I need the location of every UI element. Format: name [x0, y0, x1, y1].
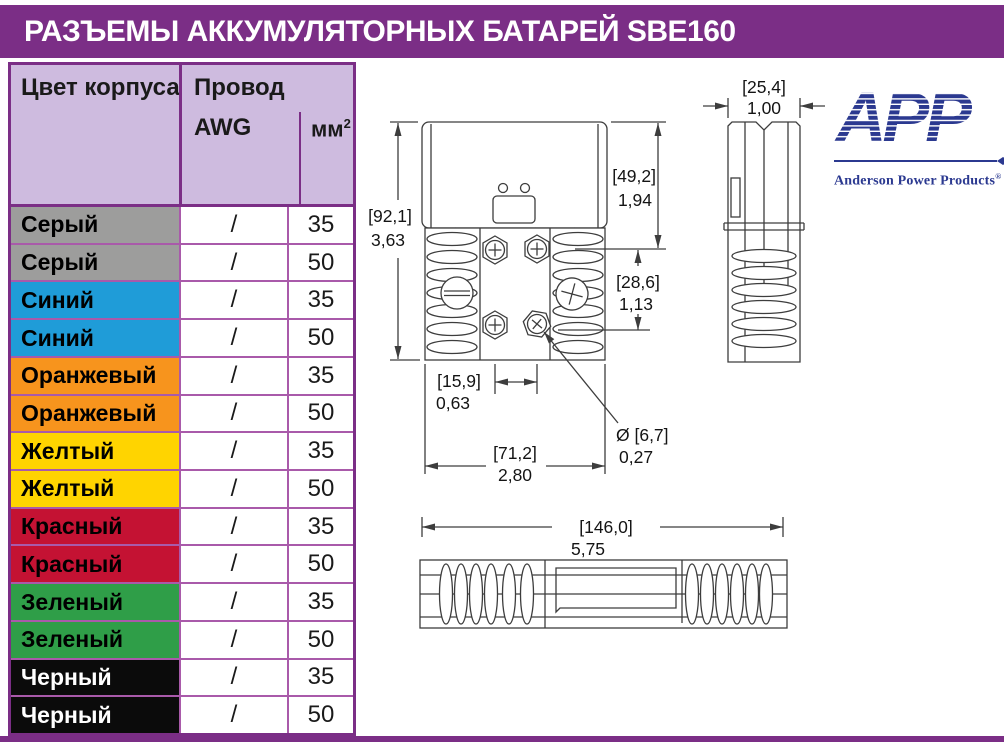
table-row: Желтый / 50	[11, 471, 353, 509]
header-wire-group: Провод AWG мм2	[182, 65, 353, 204]
awg-cell: /	[181, 282, 289, 318]
title-bar: РАЗЪЕМЫ АККУМУЛЯТОРНЫХ БАТАРЕЙ SBE160	[0, 5, 1004, 58]
mm2-cell: 50	[289, 697, 353, 733]
color-cell: Желтый	[11, 471, 181, 507]
table-row: Зеленый / 50	[11, 622, 353, 660]
page: { "page": { "title": "РАЗЪЕМЫ АККУМУЛЯТО…	[0, 0, 1004, 742]
header-mm2-base: мм	[311, 116, 344, 141]
awg-cell: /	[181, 509, 289, 545]
mm2-cell: 35	[289, 509, 353, 545]
awg-cell: /	[181, 622, 289, 658]
hex-bolt	[483, 311, 507, 339]
slotted-screw	[441, 277, 473, 309]
header-wire: Провод	[182, 65, 353, 112]
color-cell: Оранжевый	[11, 358, 181, 394]
awg-cell: /	[181, 320, 289, 356]
dim-side-width-mm: [25,4]	[742, 77, 786, 97]
color-cell: Красный	[11, 546, 181, 582]
side-view: [25,4] 1,00	[703, 77, 825, 362]
table-row: Синий / 35	[11, 282, 353, 320]
color-cell: Черный	[11, 697, 181, 733]
table-body: Серый / 35 Серый / 50 Синий / 35 Синий /…	[11, 207, 353, 733]
dim-hole-diameter-mm: Ø [6,7]	[616, 425, 669, 445]
app-logo: APP Anderson Power Products®	[834, 78, 1004, 190]
awg-cell: /	[181, 358, 289, 394]
page-title: РАЗЪЕМЫ АККУМУЛЯТОРНЫХ БАТАРЕЙ SBE160	[0, 15, 736, 49]
dim-overall-height: [92,1] 3,63	[368, 122, 420, 360]
mm2-cell: 50	[289, 546, 353, 582]
color-cell: Синий	[11, 320, 181, 356]
color-cell: Желтый	[11, 433, 181, 469]
app-logo-acronym: APP	[834, 78, 972, 148]
header-awg: AWG	[182, 112, 299, 204]
color-cell: Красный	[11, 509, 181, 545]
color-cell: Зеленый	[11, 584, 181, 620]
awg-cell: /	[181, 546, 289, 582]
color-cell: Зеленый	[11, 622, 181, 658]
color-cell: Серый	[11, 245, 181, 281]
table-header: Цвет корпуса Провод AWG мм2	[11, 65, 353, 207]
mm2-cell: 50	[289, 245, 353, 281]
table-row: Красный / 50	[11, 546, 353, 584]
awg-cell: /	[181, 471, 289, 507]
awg-cell: /	[181, 245, 289, 281]
dim-body-width-mm: [71,2]	[493, 443, 537, 463]
dim-bolt-pitch-in: 0,63	[436, 393, 470, 413]
logo-company-name-text: Anderson Power Products	[834, 174, 995, 189]
dim-bolt-pitch-mm: [15,9]	[437, 371, 481, 391]
dim-hole-diameter-in: 0,27	[619, 447, 653, 467]
mm2-cell: 35	[289, 282, 353, 318]
dim-overall-length-in: 5,75	[571, 539, 605, 559]
awg-cell: /	[181, 584, 289, 620]
header-mm2-sup: 2	[344, 116, 351, 131]
mm2-cell: 35	[289, 358, 353, 394]
awg-cell: /	[181, 433, 289, 469]
hex-bolt	[525, 235, 549, 263]
awg-cell: /	[181, 396, 289, 432]
mm2-cell: 50	[289, 320, 353, 356]
dim-side-width: [25,4] 1,00	[703, 77, 825, 118]
dim-bolt-pitch: [15,9] 0,63	[436, 364, 537, 413]
awg-cell: /	[181, 207, 289, 243]
bottom-accent-strip	[0, 736, 1004, 742]
technical-drawing: [92,1] 3,63 [49,2] 1,94 [28,6] 1,13	[360, 60, 830, 680]
color-cell: Черный	[11, 660, 181, 696]
dim-upper-height-in: 1,94	[618, 190, 652, 210]
table-row: Черный / 35	[11, 660, 353, 698]
table-row: Синий / 50	[11, 320, 353, 358]
mm2-cell: 50	[289, 396, 353, 432]
bottom-view: [146,0] 5,75	[420, 517, 787, 628]
header-body-color: Цвет корпуса	[11, 65, 182, 204]
awg-cell: /	[181, 660, 289, 696]
color-cell: Синий	[11, 282, 181, 318]
table-row: Красный / 35	[11, 509, 353, 547]
front-view: [92,1] 3,63 [49,2] 1,94 [28,6] 1,13	[368, 122, 668, 485]
awg-cell: /	[181, 697, 289, 733]
dim-overall-height-mm: [92,1]	[368, 206, 412, 226]
logo-registered-mark: ®	[995, 172, 1001, 181]
color-cell: Оранжевый	[11, 396, 181, 432]
table-row: Желтый / 35	[11, 433, 353, 471]
dim-mid-height-in: 1,13	[619, 294, 653, 314]
dim-overall-length: [146,0] 5,75	[422, 517, 783, 559]
logo-company-name: Anderson Power Products®	[834, 172, 1004, 190]
dim-overall-height-in: 3,63	[371, 230, 405, 250]
dim-overall-length-mm: [146,0]	[579, 517, 633, 537]
color-cell: Серый	[11, 207, 181, 243]
table-row: Оранжевый / 35	[11, 358, 353, 396]
table-row: Серый / 35	[11, 207, 353, 245]
table-row: Зеленый / 35	[11, 584, 353, 622]
mm2-cell: 35	[289, 584, 353, 620]
mm2-cell: 35	[289, 207, 353, 243]
mm2-cell: 35	[289, 433, 353, 469]
table-row: Серый / 50	[11, 245, 353, 283]
mm2-cell: 50	[289, 471, 353, 507]
app-logo-acronym-art: APP	[834, 78, 1004, 148]
logo-rule-icon	[834, 156, 1004, 166]
dim-upper-height-mm: [49,2]	[612, 166, 656, 186]
table-row: Черный / 50	[11, 697, 353, 733]
dim-side-width-in: 1,00	[747, 98, 781, 118]
mm2-cell: 50	[289, 622, 353, 658]
dim-body-width-in: 2,80	[498, 465, 532, 485]
mm2-cell: 35	[289, 660, 353, 696]
table-row: Оранжевый / 50	[11, 396, 353, 434]
hex-bolt	[483, 236, 507, 264]
header-mm2: мм2	[299, 112, 353, 204]
color-wire-table: Цвет корпуса Провод AWG мм2 Серый / 35 С…	[8, 62, 356, 736]
dim-mid-height-mm: [28,6]	[616, 272, 660, 292]
